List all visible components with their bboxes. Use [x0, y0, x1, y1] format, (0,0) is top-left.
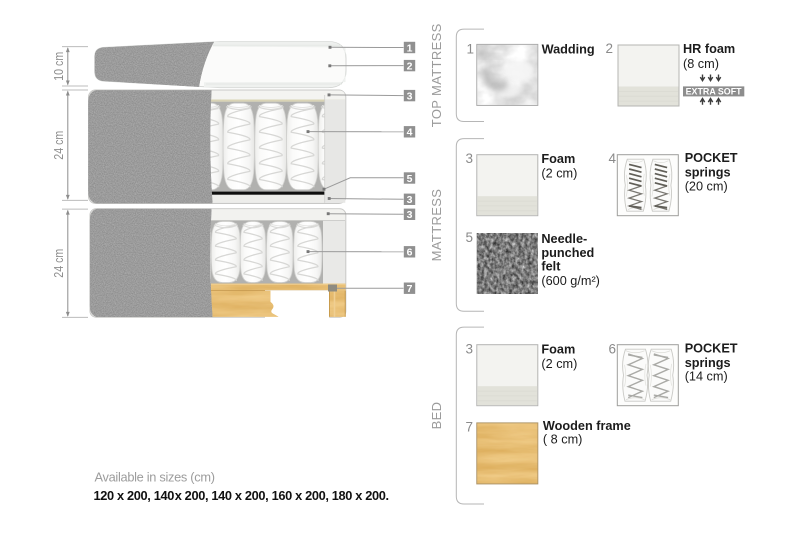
svg-text:1: 1 — [407, 42, 413, 54]
svg-text:Foam: Foam — [541, 152, 575, 166]
svg-text:springs: springs — [685, 356, 731, 370]
svg-text:POCKET: POCKET — [685, 342, 738, 356]
svg-text:3: 3 — [407, 209, 413, 221]
svg-text:2: 2 — [407, 61, 413, 73]
svg-text:(2 cm): (2 cm) — [541, 357, 577, 371]
svg-text:5: 5 — [465, 230, 473, 245]
svg-text:felt: felt — [541, 260, 561, 274]
svg-text:Wooden frame: Wooden frame — [543, 419, 631, 433]
svg-text:(20 cm): (20 cm) — [685, 179, 728, 193]
svg-text:(600 g/m²): (600 g/m²) — [541, 274, 600, 288]
svg-text:MATTRESS: MATTRESS — [429, 189, 444, 262]
svg-text:Foam: Foam — [541, 342, 575, 356]
svg-text:3: 3 — [407, 194, 413, 206]
svg-text:3: 3 — [407, 91, 413, 103]
svg-text:3: 3 — [465, 341, 473, 356]
svg-text:BED: BED — [429, 402, 444, 430]
svg-text:HR foam: HR foam — [683, 42, 735, 56]
svg-text:4: 4 — [608, 151, 616, 166]
svg-text:Needle-: Needle- — [541, 232, 587, 246]
svg-text:(2 cm): (2 cm) — [541, 167, 577, 181]
svg-text:7: 7 — [465, 420, 473, 435]
svg-text:7: 7 — [407, 283, 413, 295]
svg-text:Available in sizes (cm): Available in sizes (cm) — [95, 470, 215, 485]
svg-text:(8 cm): (8 cm) — [683, 57, 719, 71]
svg-text:Wadding: Wadding — [542, 43, 595, 57]
svg-text:1: 1 — [466, 42, 474, 57]
svg-text:punched: punched — [541, 246, 594, 260]
svg-text:2: 2 — [605, 41, 613, 56]
svg-text:TOP MATTRESS: TOP MATTRESS — [429, 23, 444, 127]
svg-text:120 x 200, 140 x 200, 140 x 20: 120 x 200, 140 x 200, 140 x 200, 160 x 2… — [94, 488, 389, 503]
svg-text:POCKET: POCKET — [685, 151, 738, 165]
svg-text:(14 cm): (14 cm) — [685, 370, 728, 384]
svg-text:3: 3 — [465, 151, 473, 166]
svg-text:( 8 cm): ( 8 cm) — [543, 433, 582, 447]
svg-text:5: 5 — [407, 173, 413, 185]
svg-text:6: 6 — [608, 341, 616, 356]
svg-text:24 cm: 24 cm — [51, 249, 66, 278]
svg-text:EXTRA SOFT: EXTRA SOFT — [686, 86, 742, 97]
svg-text:4: 4 — [407, 127, 413, 139]
svg-text:6: 6 — [407, 247, 413, 259]
svg-text:24 cm: 24 cm — [51, 131, 66, 160]
svg-text:10 cm: 10 cm — [51, 52, 66, 81]
svg-text:springs: springs — [685, 166, 731, 180]
